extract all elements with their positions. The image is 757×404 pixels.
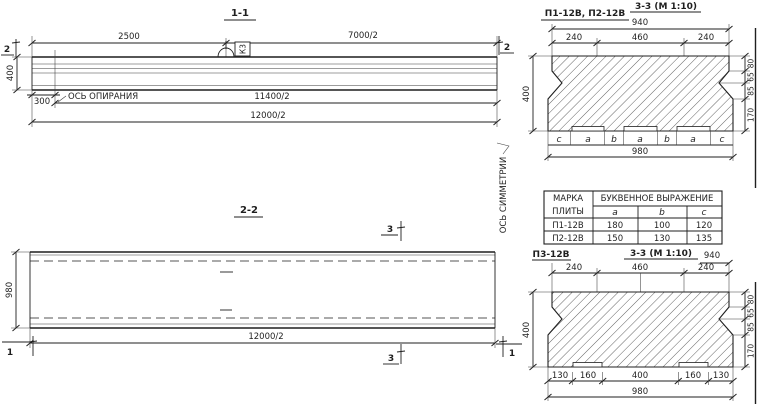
cell-c: 135 <box>696 234 712 244</box>
dim-65: 65 <box>747 72 756 82</box>
section-2-2-title: 2-2 <box>240 205 258 216</box>
dim-460: 460 <box>632 33 648 43</box>
dim-300: 300 <box>34 97 50 107</box>
dim-940: 940 <box>632 18 648 28</box>
plate-marks-label: П1-12В, П2-12В <box>545 9 626 19</box>
cell-mark: П1-12В <box>552 221 584 231</box>
cell-b: 100 <box>654 221 670 231</box>
bottom-recess <box>677 127 710 132</box>
dim-height-400: 400 <box>6 54 32 93</box>
section-3-3-top-cross-section: П1-12В, П2-12В 3-3 (М 1:10) 940 240 460 … <box>522 2 756 161</box>
dim-980: 980 <box>632 147 648 157</box>
table-header-mark-2: ПЛИТЫ <box>552 207 584 217</box>
table-row: П1-12В 180 100 120 <box>552 221 712 231</box>
dim-170: 170 <box>747 344 756 359</box>
precast-slab-drawing: 1-1 2 2 2500 7000/2 <box>0 0 757 404</box>
cut-marker-label: 2 <box>504 43 510 53</box>
section-3-3-bottom-cross-section: П3-12В 3-3 (М 1:10) 940 240 460 240 <box>522 249 756 401</box>
section-2-2-plan: 2-2 980 12000/2 <box>2 205 522 364</box>
table-row: П2-12В 150 130 135 <box>552 234 712 244</box>
cut-marker-2-left: 2 <box>1 39 20 57</box>
support-axis-label: ОСЬ ОПИРАНИЯ <box>68 92 138 102</box>
dim-170: 170 <box>747 108 756 123</box>
dim-240: 240 <box>566 263 582 273</box>
plate-mark-label: П3-12В <box>533 250 570 260</box>
cell-b: 130 <box>654 234 670 244</box>
bottom-recess <box>679 363 708 368</box>
slab-cross-section-hatched <box>548 56 733 131</box>
dim-11400-2: 11400/2 <box>254 92 289 102</box>
dim-12000-2: 12000/2 <box>250 111 285 121</box>
dim-length-12000: 12000/2 <box>27 328 499 348</box>
letter-dimension-row: c a b a b a c <box>548 131 733 145</box>
cut-marker-2-right: 2 <box>495 36 514 55</box>
bottom-recess <box>573 363 602 368</box>
dim-80: 80 <box>747 59 756 69</box>
cut-marker-3-bottom: 3 <box>383 344 405 364</box>
dim-400: 400 <box>632 371 648 381</box>
cut-marker-label: 3 <box>388 354 394 364</box>
cut-marker-3-top: 3 <box>381 221 405 241</box>
dim-130: 130 <box>552 371 568 381</box>
table-header-expression: БУКВЕННОЕ ВЫРАЖЕНИЕ <box>601 194 714 204</box>
dim-980: 980 <box>632 387 648 397</box>
symmetry-axis-callout: ОСЬ СИММЕТРИИ <box>497 143 509 233</box>
bottom-recess <box>624 127 657 132</box>
dim-line-top: 2500 7000/2 <box>29 31 501 57</box>
cell-c: 120 <box>696 221 712 231</box>
dim-240: 240 <box>698 33 714 43</box>
drawing-sheet: 1-1 2 2 2500 7000/2 <box>0 0 757 404</box>
cut-marker-label: 1 <box>7 348 13 358</box>
table-header-mark-1: МАРКА <box>553 194 583 204</box>
letter-values-table: МАРКА ПЛИТЫ БУКВЕННОЕ ВЫРАЖЕНИЕ a b c П1… <box>544 191 722 244</box>
dim-940: 940 <box>704 251 720 261</box>
dim-width-980: 980 <box>5 249 30 331</box>
letter-b: b <box>611 135 617 145</box>
letter-a: a <box>637 135 643 145</box>
letter-b: b <box>664 135 670 145</box>
symmetry-axis-label: ОСЬ СИММЕТРИИ <box>499 157 509 234</box>
table-col-a: a <box>612 208 618 218</box>
dim-400: 400 <box>522 322 532 338</box>
dim-400: 400 <box>6 65 16 81</box>
table-col-c: c <box>702 208 707 218</box>
cut-marker-1-right: 1 <box>496 336 522 359</box>
dim-85: 85 <box>747 322 756 332</box>
dim-160: 160 <box>580 371 596 381</box>
dim-12000-2: 12000/2 <box>248 332 283 342</box>
cut-marker-label: 2 <box>4 45 10 55</box>
letter-a: a <box>585 135 591 145</box>
dim-240: 240 <box>566 33 582 43</box>
cell-mark: П2-12В <box>552 234 584 244</box>
dim-overall-980: 980 <box>545 387 737 400</box>
lifting-loop-label: К3 <box>239 44 248 54</box>
section-3-3-title: 3-3 (М 1:10) <box>635 2 697 12</box>
table-col-b: b <box>659 208 665 218</box>
slab-cross-section-hatched <box>548 292 733 367</box>
letter-c: c <box>720 135 725 145</box>
support-axis-callout: 300 ОСЬ ОПИРАНИЯ <box>27 92 138 107</box>
dim-overall-980: 980 <box>545 145 737 161</box>
cut-marker-label: 3 <box>387 225 393 235</box>
dim-130: 130 <box>713 371 729 381</box>
dim-85: 85 <box>747 86 756 96</box>
dim-980: 980 <box>5 282 15 298</box>
bottom-recess <box>572 127 604 132</box>
dim-460: 460 <box>632 263 648 273</box>
dim-2500: 2500 <box>118 32 140 42</box>
cell-a: 150 <box>607 234 623 244</box>
section-3-3-title: 3-3 (М 1:10) <box>630 249 692 259</box>
dim-240: 240 <box>698 263 714 273</box>
letter-c: c <box>557 135 562 145</box>
section-1-1-title: 1-1 <box>231 8 249 19</box>
cell-a: 180 <box>607 221 623 231</box>
cut-marker-1-left: 1 <box>2 336 37 358</box>
dim-65: 65 <box>747 308 756 318</box>
cut-marker-label: 1 <box>509 349 515 359</box>
dim-7000-2: 7000/2 <box>348 31 378 41</box>
slab-plan-view <box>30 252 495 328</box>
letter-a: a <box>690 135 696 145</box>
section-1-1-elevation: 1-1 2 2 2500 7000/2 <box>1 8 514 127</box>
dim-80: 80 <box>747 295 756 305</box>
dim-160: 160 <box>685 371 701 381</box>
dim-400: 400 <box>522 86 532 102</box>
